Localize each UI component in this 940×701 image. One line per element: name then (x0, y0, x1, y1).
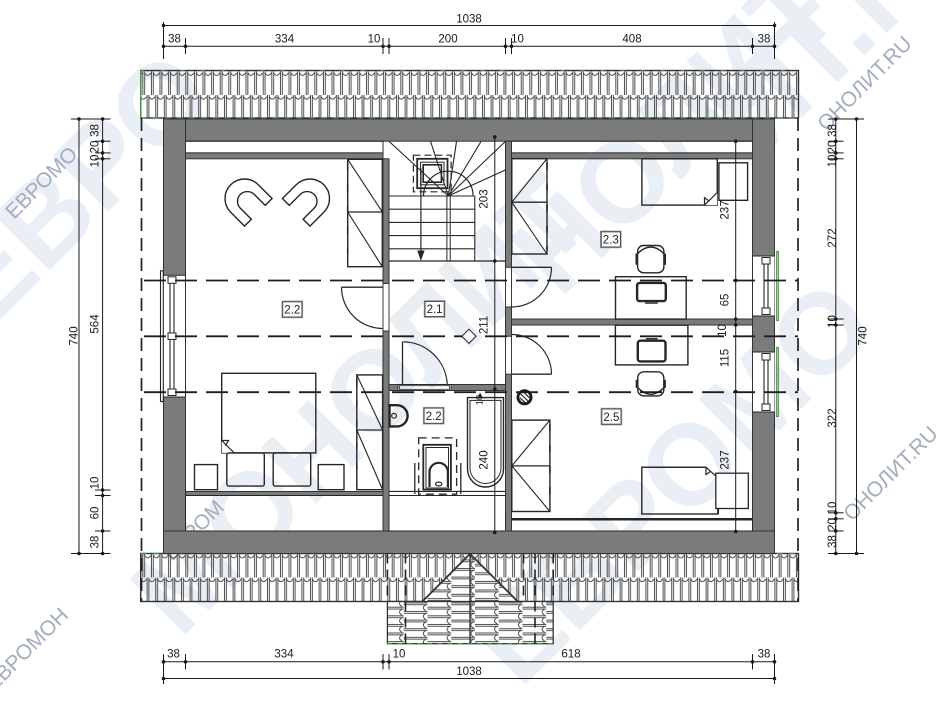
svg-text:334: 334 (275, 34, 295, 46)
svg-text:334: 334 (274, 649, 294, 661)
svg-text:2.2: 2.2 (284, 305, 300, 317)
svg-text:237: 237 (720, 200, 732, 219)
svg-text:618: 618 (561, 649, 580, 661)
svg-text:408: 408 (622, 34, 641, 46)
svg-text:10: 10 (393, 649, 406, 661)
svg-text:38: 38 (827, 124, 839, 137)
svg-text:20: 20 (90, 141, 102, 154)
svg-text:ОНОЛИТ.RU: ОНОЛИТ.RU (839, 422, 940, 525)
svg-text:ЕВРОМОН: ЕВРОМОН (0, 604, 73, 696)
svg-text:200: 200 (438, 34, 457, 46)
svg-text:20: 20 (827, 518, 839, 531)
svg-text:740: 740 (858, 326, 870, 345)
svg-text:38: 38 (827, 535, 839, 548)
svg-text:322: 322 (827, 408, 839, 427)
svg-text:10: 10 (368, 34, 381, 46)
svg-text:2.2: 2.2 (426, 411, 442, 423)
svg-text:1038: 1038 (456, 14, 482, 26)
svg-text:10: 10 (717, 324, 729, 337)
svg-text:38: 38 (90, 536, 102, 549)
svg-text:38: 38 (168, 34, 181, 46)
svg-text:564: 564 (90, 314, 102, 334)
svg-text:211: 211 (479, 316, 491, 334)
svg-text:60: 60 (90, 507, 102, 520)
svg-text:1038: 1038 (456, 666, 482, 678)
svg-text:10: 10 (827, 502, 839, 515)
svg-text:2.5: 2.5 (603, 412, 619, 424)
svg-text:10: 10 (511, 34, 524, 46)
svg-text:10: 10 (90, 155, 102, 168)
svg-text:10: 10 (827, 155, 839, 168)
svg-text:203: 203 (479, 189, 491, 208)
svg-text:38: 38 (167, 649, 180, 661)
svg-text:2.1: 2.1 (427, 304, 443, 316)
svg-text:115: 115 (720, 349, 732, 367)
svg-text:38: 38 (758, 649, 771, 661)
svg-text:2.3: 2.3 (603, 235, 619, 247)
svg-text:740: 740 (69, 326, 81, 345)
svg-text:65: 65 (720, 294, 732, 307)
svg-text:10: 10 (90, 477, 102, 490)
svg-text:240: 240 (479, 450, 491, 469)
svg-text:10: 10 (827, 315, 839, 328)
svg-text:237: 237 (720, 450, 732, 469)
svg-text:272: 272 (827, 228, 839, 247)
svg-text:38: 38 (90, 124, 102, 137)
svg-text:20: 20 (827, 141, 839, 154)
svg-text:38: 38 (758, 34, 771, 46)
